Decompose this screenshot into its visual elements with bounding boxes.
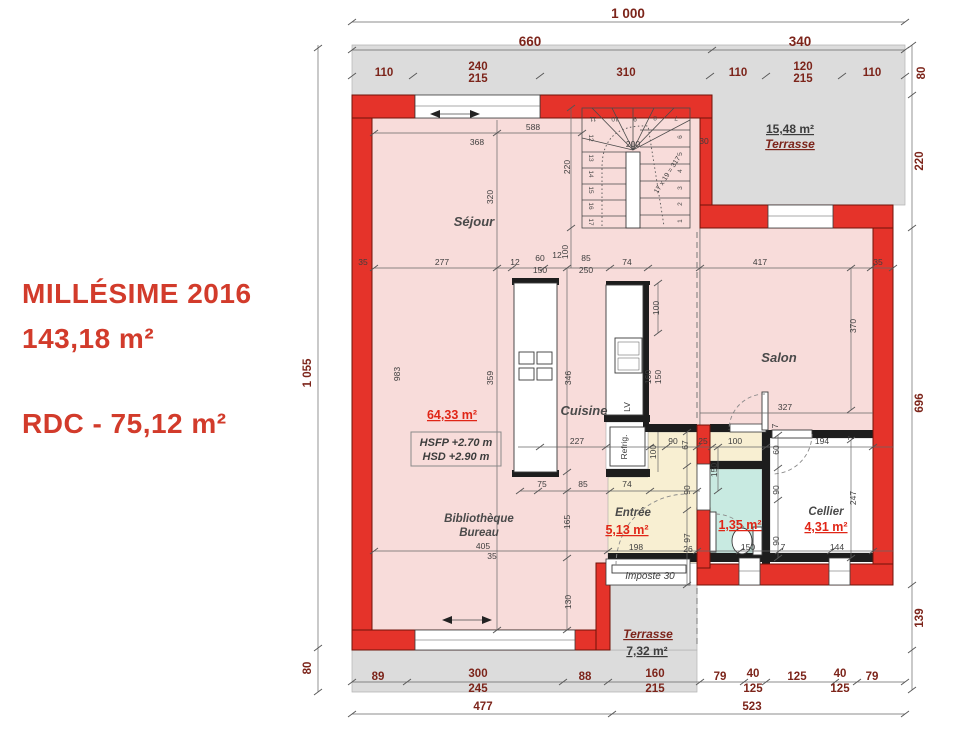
room-label-entree: Entrée xyxy=(615,507,651,519)
stair-step: 12 xyxy=(587,134,594,142)
dim-label: 150 xyxy=(709,463,719,477)
room-label-salon: Salon xyxy=(761,350,796,365)
stair-step: 3 xyxy=(677,186,684,190)
dim-label: 320 xyxy=(485,190,495,204)
dim-label: 100 xyxy=(651,301,661,315)
dim-label: 40 xyxy=(834,668,847,680)
dim-label: 100 xyxy=(728,436,742,446)
stair-step: 8 xyxy=(653,114,657,121)
dim-label: 696 xyxy=(914,393,926,412)
dim-label: 90 xyxy=(682,485,692,495)
dim-label: 215 xyxy=(645,683,665,695)
dim-label: 160 xyxy=(643,370,653,384)
dim-label: 85 xyxy=(581,253,591,263)
dim-label: 60 xyxy=(771,445,781,455)
dim-label: 327 xyxy=(778,402,792,412)
fridge-label: Refrig. xyxy=(619,434,629,459)
salon-door-leaf xyxy=(762,392,768,430)
dim-label: 477 xyxy=(473,701,492,713)
dim-label: 25 xyxy=(698,436,708,446)
stair-wall: 30 xyxy=(699,136,709,146)
dim-label: 125 xyxy=(743,683,763,695)
dim-label: 310 xyxy=(616,67,635,79)
dim-label: 417 xyxy=(753,257,767,267)
sink xyxy=(615,338,642,373)
dishwasher-label: LV xyxy=(622,402,632,412)
dim-label: 110 xyxy=(375,67,394,79)
dim-label: 67 xyxy=(680,440,690,450)
dim-label: 90 xyxy=(771,485,781,495)
dim-label: 125 xyxy=(830,683,850,695)
dim-label: 100 xyxy=(648,445,658,459)
room-label-terrasse-nord: Terrasse xyxy=(765,137,815,151)
floor-plan-drawing: 1 000 660 340 110 240 215 310 110 120 21… xyxy=(0,0,960,740)
salon-door-opening xyxy=(730,424,766,432)
dim-label: 1 000 xyxy=(611,6,645,21)
stair-step: 17 xyxy=(587,218,594,226)
stair-step: 10 xyxy=(611,115,619,122)
stair-depth: 220 xyxy=(562,160,572,174)
stair-step: 11 xyxy=(589,115,596,122)
dim-label: 40 xyxy=(747,668,760,680)
dim-label: 220 xyxy=(914,151,926,170)
dim-label: 97 xyxy=(682,533,692,543)
dim-label: 150 xyxy=(741,542,755,552)
ceiling-height-note-2: HSD +2.90 m xyxy=(423,451,490,463)
dim-label: 160 xyxy=(645,668,664,680)
stair-step: 14 xyxy=(587,170,594,178)
dim-label: 523 xyxy=(742,701,761,713)
stair-step: 7 xyxy=(674,114,678,121)
dim-label: 120 xyxy=(793,61,812,73)
dim-label: 300 xyxy=(468,668,487,680)
dim-label: 588 xyxy=(526,122,540,132)
dim-label: 247 xyxy=(848,491,858,505)
stair-step: 15 xyxy=(587,186,594,194)
area-label-wc: 1,35 m² xyxy=(718,518,761,532)
dim-label: 35 xyxy=(358,257,368,267)
dim-label: 85 xyxy=(578,479,588,489)
dim-label: 35 xyxy=(487,551,497,561)
dim-label: 150 xyxy=(653,370,663,384)
area-label-terrasse-sud: 7,32 m² xyxy=(626,644,667,658)
imposte-note: Imposte 30 xyxy=(625,571,675,582)
dim-label: 198 xyxy=(629,542,643,552)
cooktop-burner xyxy=(537,368,552,380)
dim-label: 368 xyxy=(470,137,484,147)
dim-label: 100 xyxy=(560,245,570,259)
dim-label: 88 xyxy=(579,671,592,683)
stair-step: 5 xyxy=(677,152,684,156)
dim-label: 227 xyxy=(570,436,584,446)
dim-label: 12 xyxy=(510,257,520,267)
stair-step: 16 xyxy=(587,202,594,210)
dim-label: 194 xyxy=(815,436,829,446)
dim-label: 130 xyxy=(563,595,573,609)
dim-label: 346 xyxy=(563,371,573,385)
dim-label: 125 xyxy=(787,671,807,683)
dim-label: 80 xyxy=(916,67,928,80)
stair-step: 1 xyxy=(677,219,684,223)
stair-step: 6 xyxy=(677,135,684,139)
area-label-entree: 5,13 m² xyxy=(605,523,648,537)
area-label-cellier: 4,31 m² xyxy=(804,520,847,534)
dim-label: 80 xyxy=(302,662,314,675)
ceiling-height-note-1: HSFP +2.70 m xyxy=(420,437,493,449)
dim-label: 90 xyxy=(771,536,781,546)
area-label-terrasse-nord: 15,48 m² xyxy=(766,122,814,136)
stair-step: 13 xyxy=(587,154,594,162)
room-label-cellier: Cellier xyxy=(808,506,844,518)
dim-label: 139 xyxy=(914,608,926,627)
dim-label: 215 xyxy=(793,73,813,85)
dim-label: 35 xyxy=(873,257,883,267)
room-label-bibliotheque: Bibliothèque xyxy=(444,513,514,525)
room-label-cuisine: Cuisine xyxy=(561,403,608,418)
stair-width: 200 xyxy=(626,139,640,149)
floor-plan-page: MILLÉSIME 2016 143,18 m² RDC - 75,12 m² xyxy=(0,0,960,740)
dim-label: 250 xyxy=(579,265,593,275)
wall-stub-wc-south xyxy=(697,508,710,568)
window-se-2 xyxy=(829,558,850,585)
dim-label: 165 xyxy=(562,515,572,529)
dim-label: 89 xyxy=(372,671,385,683)
room-label-sejour: Séjour xyxy=(454,214,495,229)
area-label-sejour: 64,33 m² xyxy=(427,408,477,422)
window-se-1 xyxy=(739,558,760,585)
dim-label: 75 xyxy=(537,479,547,489)
dim-label: 359 xyxy=(485,371,495,385)
dim-label: 215 xyxy=(468,73,488,85)
dim-label: 7 xyxy=(781,542,786,552)
dim-label: 660 xyxy=(519,34,542,49)
dim-label: 110 xyxy=(729,67,748,79)
dim-label: 90 xyxy=(668,436,678,446)
room-label-bureau: Bureau xyxy=(459,527,499,539)
dim-label: 26 xyxy=(683,544,693,554)
dim-label: 79 xyxy=(714,671,727,683)
cooktop-burner xyxy=(537,352,552,364)
dim-label: 150 xyxy=(533,265,547,275)
stair-step: 9 xyxy=(633,115,637,122)
dim-label: 340 xyxy=(789,34,812,49)
dim-label: 110 xyxy=(863,67,882,79)
dim-label: 144 xyxy=(830,542,844,552)
stair-step: 2 xyxy=(677,202,684,206)
dim-label: 240 xyxy=(468,61,487,73)
room-label-terrasse-sud: Terrasse xyxy=(623,627,673,641)
dim-label: 1 055 xyxy=(302,358,314,387)
dim-label: 74 xyxy=(622,257,632,267)
dim-label: 7 xyxy=(846,435,856,440)
dim-label: 277 xyxy=(435,257,449,267)
stair-void xyxy=(626,152,640,228)
dim-label: 79 xyxy=(866,671,879,683)
wc-door-leaf xyxy=(710,512,716,552)
dim-label: 370 xyxy=(848,319,858,333)
dim-label: 7 xyxy=(770,423,780,428)
dim-label: 60 xyxy=(535,253,545,263)
stair-step: 4 xyxy=(677,169,684,173)
cooktop-burner xyxy=(519,352,534,364)
cooktop-burner xyxy=(519,368,534,380)
window-salon-north xyxy=(768,205,833,228)
dim-label: 245 xyxy=(468,683,488,695)
dim-label: 405 xyxy=(476,541,490,551)
dim-label: 74 xyxy=(622,479,632,489)
dim-label: 983 xyxy=(392,367,402,381)
